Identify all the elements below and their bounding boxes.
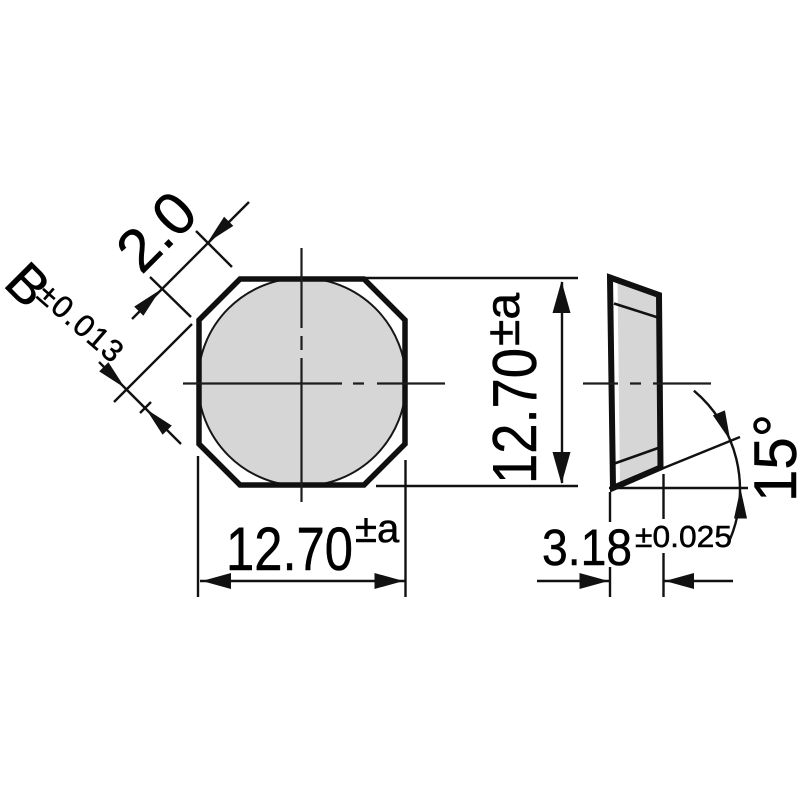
svg-text:±a: ±a — [355, 507, 400, 551]
svg-text:12.70: 12.70 — [226, 515, 353, 583]
svg-text:±0.025: ±0.025 — [635, 519, 732, 554]
svg-text:12.70: 12.70 — [481, 348, 550, 484]
svg-text:15°: 15° — [742, 414, 800, 502]
svg-text:3.18: 3.18 — [542, 519, 632, 576]
svg-text:±a: ±a — [477, 293, 530, 346]
